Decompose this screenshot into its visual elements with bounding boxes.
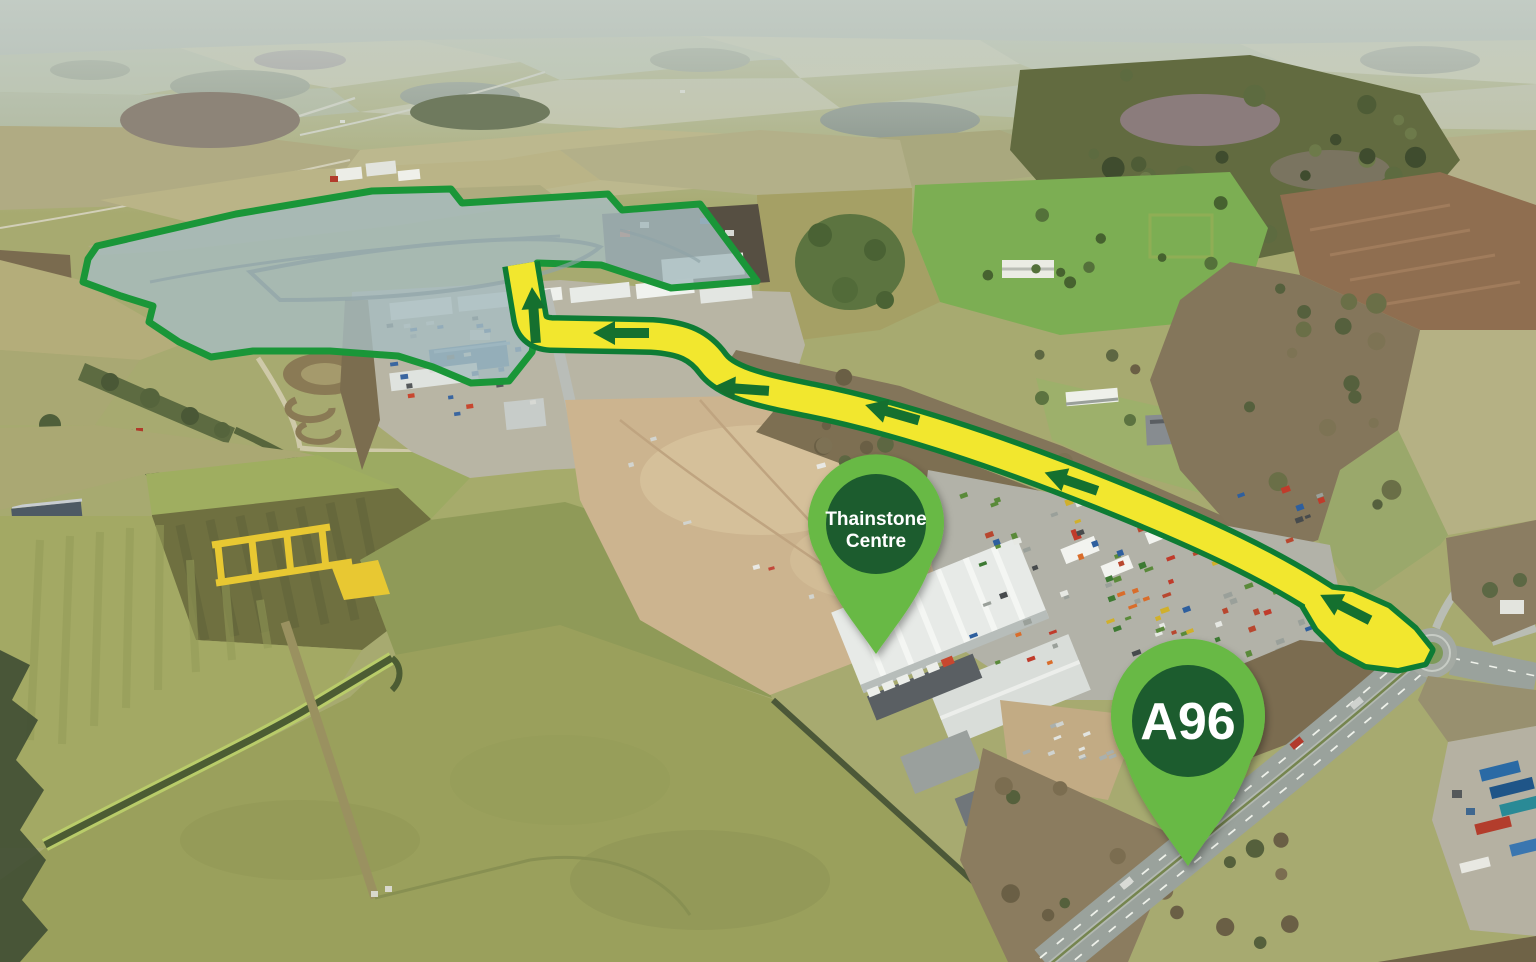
pin-label-line1: A96 — [1140, 693, 1235, 751]
aerial-route-map: Thainstone Centre A96 — [0, 0, 1536, 962]
pin-label-line2: Centre — [846, 531, 906, 552]
aerial-photo-scene: Thainstone Centre A96 — [0, 0, 1536, 962]
pin-label-line1: Thainstone — [825, 509, 926, 530]
aerial-photo-landscape — [0, 0, 1536, 962]
